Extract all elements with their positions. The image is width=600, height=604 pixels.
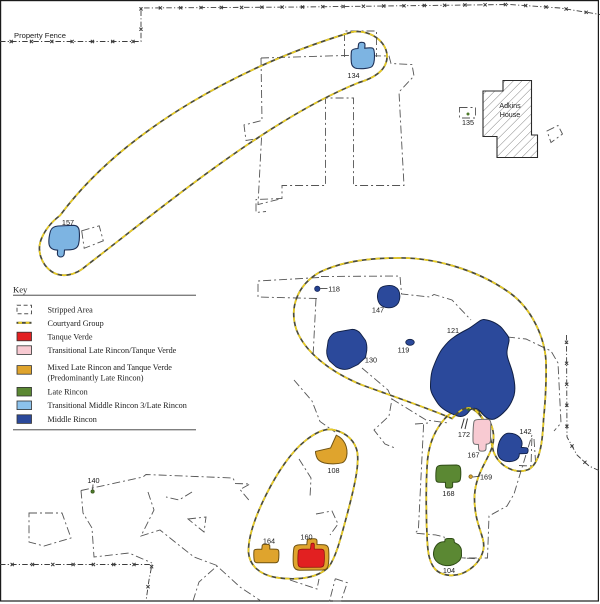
svg-text:140: 140 [87, 476, 99, 485]
svg-text:Transitional Middle Rincon 3/L: Transitional Middle Rincon 3/Late Rincon [48, 401, 187, 410]
svg-text:169: 169 [480, 473, 492, 482]
svg-text:172: 172 [458, 430, 470, 439]
svg-text:130: 130 [365, 356, 377, 365]
svg-text:164: 164 [263, 537, 275, 546]
svg-text:Stripped Area: Stripped Area [48, 305, 94, 314]
svg-text:104: 104 [443, 566, 455, 575]
svg-text:Mixed Late Rincon and Tanque V: Mixed Late Rincon and Tanque Verde [48, 363, 173, 372]
svg-text:121: 121 [447, 326, 459, 335]
svg-text:Courtyard Group: Courtyard Group [48, 319, 104, 328]
svg-text:Transitional Late Rincon/Tanqu: Transitional Late Rincon/Tanque Verde [48, 346, 177, 355]
svg-text:Middle Rincon: Middle Rincon [48, 415, 97, 424]
svg-text:Late Rincon: Late Rincon [48, 388, 88, 397]
svg-text:118: 118 [328, 285, 340, 294]
svg-text:House: House [500, 111, 521, 119]
svg-text:(Predominantly Late Rincon): (Predominantly Late Rincon) [48, 373, 144, 382]
svg-text:147: 147 [372, 306, 384, 315]
svg-text:Property Fence: Property Fence [14, 31, 66, 40]
svg-text:119: 119 [398, 346, 410, 355]
svg-text:160: 160 [300, 533, 312, 542]
svg-text:Adkins: Adkins [499, 102, 521, 110]
svg-text:142: 142 [519, 427, 531, 436]
svg-text:Tanque Verde: Tanque Verde [48, 332, 93, 341]
svg-text:167: 167 [467, 451, 479, 460]
svg-text:135: 135 [462, 118, 474, 127]
svg-text:108: 108 [327, 466, 339, 475]
svg-text:Key: Key [13, 285, 28, 295]
svg-text:157: 157 [62, 218, 74, 227]
svg-text:168: 168 [442, 489, 454, 498]
svg-text:134: 134 [347, 71, 359, 80]
